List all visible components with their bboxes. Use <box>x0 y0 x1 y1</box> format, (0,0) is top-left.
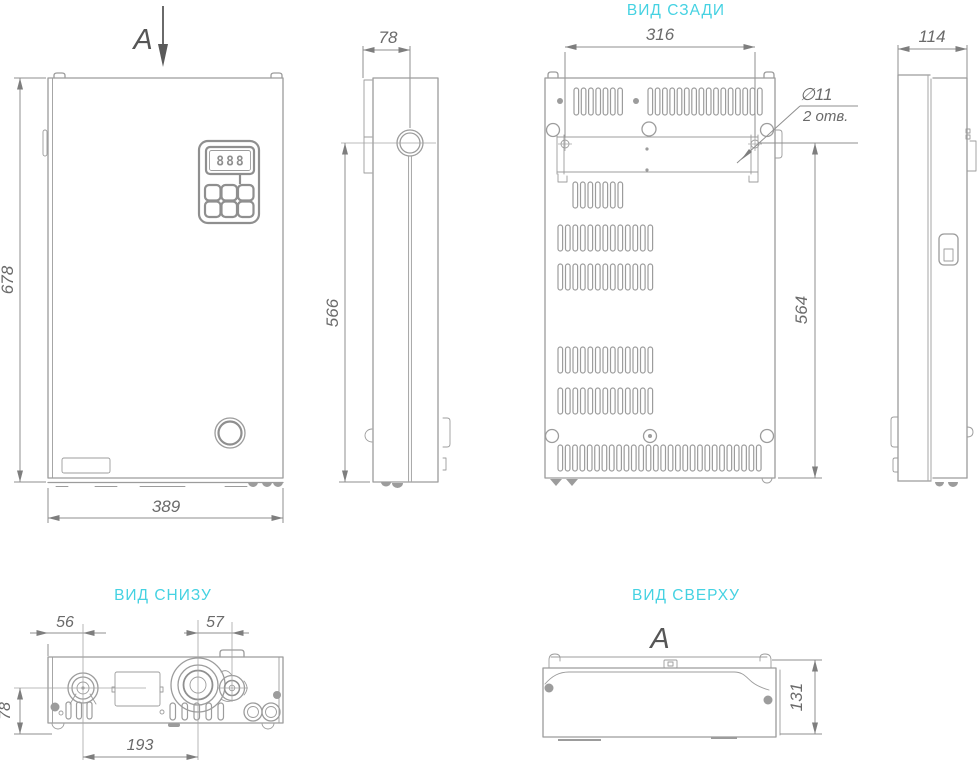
dim-rear-mount-width: 316 <box>565 25 755 138</box>
vent-slot <box>66 702 71 719</box>
keypad-button <box>222 202 238 218</box>
vent-slot <box>596 225 601 251</box>
section-arrowhead <box>158 44 168 67</box>
vent-slot <box>690 445 695 471</box>
vent-slot <box>596 388 601 414</box>
vent-slot <box>618 347 623 373</box>
left-hook-upper <box>891 417 898 447</box>
seven-segment-display: 888 <box>216 155 245 170</box>
vent-slot <box>566 225 571 251</box>
latch-inner <box>944 249 953 261</box>
side-view-right: 114 <box>891 27 976 487</box>
vent-slot <box>588 264 593 290</box>
vent-slot <box>588 225 593 251</box>
front-top-tab-right <box>271 73 282 78</box>
dim-text-bottom-span: 193 <box>127 737 154 754</box>
vent-slot <box>618 88 623 115</box>
vent-slot <box>626 264 631 290</box>
right-hook <box>967 427 973 437</box>
nameplate <box>62 458 110 473</box>
vent-slot <box>670 88 675 115</box>
dim-front-width: 389 <box>48 488 283 523</box>
cable-glands <box>244 703 280 721</box>
vent-slot <box>603 225 608 251</box>
vent-slot <box>749 445 754 471</box>
vent-slot <box>727 445 732 471</box>
vent-slot <box>742 445 747 471</box>
vent-slot <box>646 445 651 471</box>
control-panel: 888 <box>199 141 259 223</box>
vent-slot <box>648 264 653 290</box>
rivet <box>273 691 281 699</box>
side-foot <box>392 483 403 488</box>
vent-slot <box>668 445 673 471</box>
vent-slot <box>566 264 571 290</box>
vent-slot <box>655 88 660 115</box>
bottom-feet <box>52 723 274 729</box>
vent-slot <box>758 88 763 115</box>
vent-slot <box>736 88 741 115</box>
dim-text-side-height: 566 <box>323 298 342 327</box>
dim-text-side-depth: 78 <box>379 28 398 47</box>
vent-slot <box>566 388 571 414</box>
vent-slot <box>734 445 739 471</box>
vent-slot <box>617 445 622 471</box>
rear-side-tab <box>775 130 782 158</box>
vent-slot <box>663 88 668 115</box>
wall-rail-profile <box>364 80 372 173</box>
vent-slot <box>574 88 579 115</box>
bottom-junction-box <box>112 672 163 706</box>
side-view-left: 78 566 <box>323 28 450 488</box>
vent-slot <box>633 264 638 290</box>
keyhole <box>761 430 774 443</box>
vent-slot <box>611 264 616 290</box>
vent-slot <box>692 88 697 115</box>
rear-rivet <box>633 98 639 104</box>
vent-slot <box>676 445 681 471</box>
keyhole <box>761 124 774 137</box>
vent-slot <box>588 182 593 208</box>
vent-slot <box>618 264 623 290</box>
vent-slot <box>589 88 594 115</box>
vent-slot <box>581 347 586 373</box>
vent-slot <box>596 264 601 290</box>
hole-quantity-note: 2 отв. <box>802 108 848 125</box>
dim-text-front-height: 678 <box>0 265 17 294</box>
vent-slot <box>603 347 608 373</box>
vent-slot <box>712 445 717 471</box>
section-label-a-top: A <box>648 623 669 655</box>
vent-slot <box>573 388 578 414</box>
side-right-hook-upper <box>443 418 450 447</box>
vent-slot <box>721 88 726 115</box>
dim-bottom-span: 193 <box>83 620 232 760</box>
left-hook-lower <box>893 458 898 472</box>
dim-text-rear-height: 564 <box>792 296 811 324</box>
rear-rivet <box>557 98 563 104</box>
dim-text-top-depth: 131 <box>787 683 806 711</box>
vent-slot <box>626 347 631 373</box>
dim-front-height: 678 <box>0 78 46 482</box>
vent-slot <box>182 703 188 720</box>
vent-slot <box>588 347 593 373</box>
vent-slot <box>596 347 601 373</box>
vent-slot <box>633 388 638 414</box>
vent-slot <box>581 88 586 115</box>
keyhole <box>642 122 656 136</box>
vent-slot <box>581 225 586 251</box>
top-view-title: ВИД СВЕРХУ <box>632 587 740 604</box>
vent-slot <box>648 347 653 373</box>
keypad-button <box>238 202 254 218</box>
vent-slot <box>566 347 571 373</box>
vent-slot <box>573 182 578 208</box>
front-view: A 888 <box>0 6 283 523</box>
rear-panel-outline <box>545 78 775 478</box>
vent-slot <box>580 445 585 471</box>
vent-slot <box>206 703 212 720</box>
vent-slot <box>639 445 644 471</box>
keypad-button <box>205 202 221 218</box>
rear-top-tab-right <box>764 72 774 78</box>
vent-slot <box>611 225 616 251</box>
dim-text-right-depth: 114 <box>918 27 945 46</box>
vent-slot <box>641 388 646 414</box>
vent-slot <box>728 88 733 115</box>
dim-top-depth: 131 <box>772 660 822 734</box>
vent-slot <box>587 445 592 471</box>
vent-slot <box>611 88 616 115</box>
vent-slot <box>743 88 748 115</box>
bottom-view-title: ВИД СНИЗУ <box>114 587 212 604</box>
vent-slot <box>633 347 638 373</box>
technical-drawing-canvas: A 888 <box>0 0 980 769</box>
rear-view: ВИД СЗАДИ 316 <box>545 2 858 486</box>
side-bracket-hook <box>365 429 372 442</box>
vent-slot <box>558 347 563 373</box>
latch-detail <box>939 234 958 265</box>
vent-slot <box>611 182 616 208</box>
bracket-foot-left <box>558 174 567 182</box>
vent-slot <box>756 445 761 471</box>
vent-slot <box>603 88 608 115</box>
vent-slot <box>565 445 570 471</box>
keyhole <box>547 124 560 137</box>
vent-slot <box>706 88 711 115</box>
leader-arrow <box>741 149 752 160</box>
vent-slot <box>581 388 586 414</box>
top-bracket-band <box>549 654 771 668</box>
front-door-handle <box>43 130 47 156</box>
vent-slot <box>618 182 623 208</box>
vent-slot <box>641 225 646 251</box>
dim-side-height: 566 <box>323 143 370 482</box>
vent-slot <box>558 388 563 414</box>
front-cabinet-outline <box>48 78 283 478</box>
keypad-button <box>205 185 221 201</box>
vent-slot <box>641 264 646 290</box>
side-right-hook-lower <box>443 458 446 470</box>
vent-slot <box>77 702 82 719</box>
front-knob-inner <box>219 422 242 445</box>
dim-bottom-left: 56 <box>30 614 106 656</box>
rivet <box>51 703 60 712</box>
vent-slot <box>581 182 586 208</box>
vent-slot <box>558 225 563 251</box>
control-panel-frame <box>199 141 259 223</box>
vent-slot <box>618 225 623 251</box>
bottom-view: ВИД СНИЗУ 56 57 <box>0 587 283 760</box>
vent-slot <box>685 88 690 115</box>
vent-slot <box>654 445 659 471</box>
vent-slot <box>626 388 631 414</box>
dim-bottom-mid: 57 <box>184 614 249 633</box>
rear-vent-slots <box>558 88 762 471</box>
dim-text-bottom-left: 56 <box>56 614 74 631</box>
side-body-outline <box>373 78 438 482</box>
vent-slot <box>699 88 704 115</box>
right-body <box>898 75 967 481</box>
vent-slot <box>661 445 666 471</box>
top-inner-contour <box>545 672 769 690</box>
vent-slot <box>573 347 578 373</box>
hole-diameter-note: ∅11 <box>800 85 832 104</box>
vent-slot <box>648 88 653 115</box>
rear-bottom-tabs <box>550 478 772 486</box>
vent-slot <box>573 445 578 471</box>
vent-slot <box>618 388 623 414</box>
section-label-a-front: A <box>131 24 152 56</box>
vent-slot <box>581 264 586 290</box>
rivet <box>545 684 554 693</box>
vent-slot <box>573 264 578 290</box>
rear-top-tab-left <box>548 72 558 78</box>
side-foot <box>381 482 391 487</box>
keypad <box>205 185 254 217</box>
vent-slot <box>632 445 637 471</box>
mounting-bracket <box>557 135 762 182</box>
vent-slot <box>633 225 638 251</box>
vent-slot <box>750 88 755 115</box>
vent-slot <box>596 182 601 208</box>
vent-slot <box>573 225 578 251</box>
vent-slot <box>602 445 607 471</box>
vent-slot <box>626 225 631 251</box>
vent-slot <box>698 445 703 471</box>
vent-slot <box>611 347 616 373</box>
vent-slot <box>218 703 224 720</box>
rear-view-title: ВИД СЗАДИ <box>627 2 725 19</box>
top-view: ВИД СВЕРХУ A 131 <box>543 587 822 740</box>
front-top-tab-left <box>54 73 65 78</box>
vent-slot <box>603 182 608 208</box>
bottom-vent-slots-left <box>66 702 92 719</box>
vent-slot <box>648 225 653 251</box>
rivet <box>764 696 773 705</box>
vent-slot <box>87 702 92 719</box>
vent-slot <box>603 264 608 290</box>
vent-slot <box>648 388 653 414</box>
vent-slot <box>588 388 593 414</box>
right-foot <box>935 482 944 487</box>
vent-slot <box>705 445 710 471</box>
vent-slot <box>611 388 616 414</box>
section-arrow-a: A <box>131 6 168 67</box>
vent-slot <box>714 88 719 115</box>
vent-slot <box>595 445 600 471</box>
dim-text-rear-mount-width: 316 <box>646 25 675 44</box>
vent-slot <box>624 445 629 471</box>
dim-text-front-width: 389 <box>152 497 181 516</box>
vent-slot <box>558 445 563 471</box>
dim-text-bottom-mid: 57 <box>206 614 225 631</box>
vent-slot <box>170 703 176 720</box>
top-body-outline <box>543 668 776 737</box>
right-foot <box>948 482 958 487</box>
vent-slot <box>603 388 608 414</box>
vent-slot <box>596 88 601 115</box>
keypad-button <box>222 185 238 201</box>
dim-right-depth: 114 <box>898 27 967 79</box>
vent-slot <box>641 347 646 373</box>
vent-slot <box>683 445 688 471</box>
keyhole <box>546 430 559 443</box>
vent-slot <box>677 88 682 115</box>
dim-text-bottom-front: 78 <box>0 702 14 720</box>
bracket-foot-right <box>749 174 758 182</box>
dim-bottom-front: 78 <box>0 688 146 734</box>
vent-slot <box>609 445 614 471</box>
keypad-button <box>238 185 254 201</box>
vent-slot <box>558 264 563 290</box>
vent-slot <box>720 445 725 471</box>
